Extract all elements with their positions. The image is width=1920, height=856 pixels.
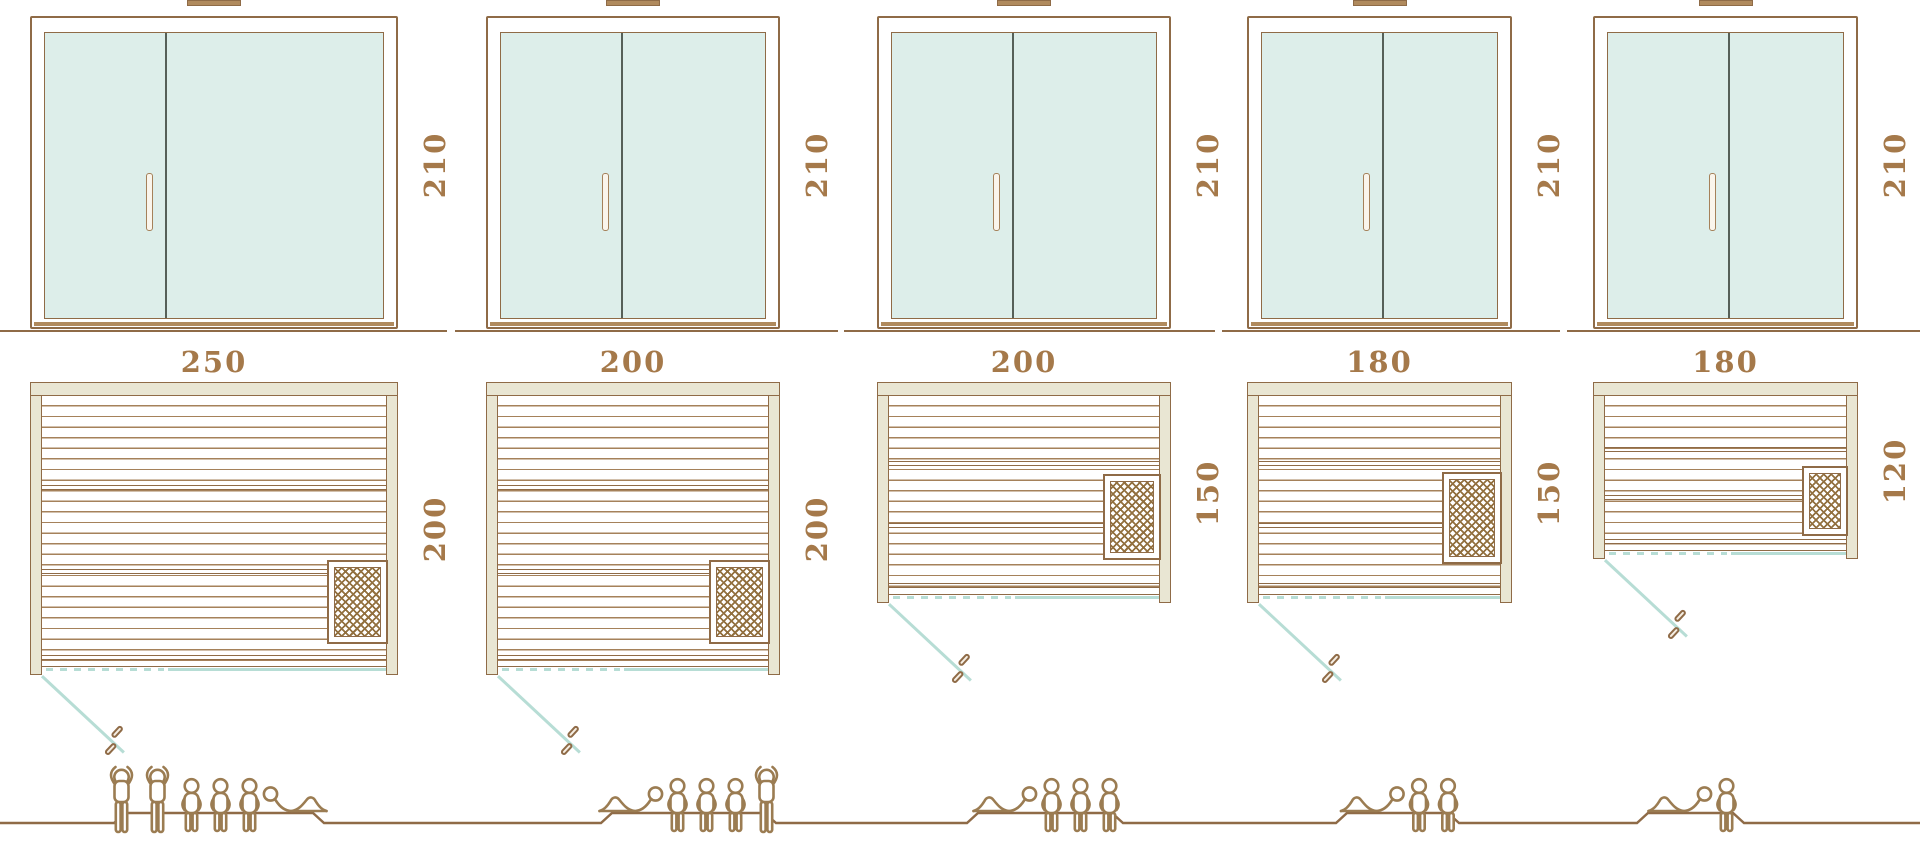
roof-vent-cap (997, 0, 1051, 6)
plan-wall-top (1593, 382, 1858, 396)
person-seated-icon (211, 779, 229, 831)
plan-wall-top (30, 382, 398, 396)
glass-front-fixed-pane (168, 668, 386, 671)
floor-plan (486, 382, 780, 675)
person-seated-icon (1071, 779, 1089, 831)
door-height-dimension: 210 (800, 132, 834, 199)
door-swing-line (41, 675, 125, 753)
door-frame (1247, 16, 1512, 329)
heater (1802, 466, 1848, 536)
door-height-dimension: 210 (1191, 132, 1225, 199)
door-handle-plan-icon (1657, 606, 1698, 647)
sauna-column: 210 180 120 (1593, 0, 1858, 856)
glass-front-fixed-pane (1015, 596, 1159, 599)
bench-planks (41, 395, 387, 667)
plan-depth-dimension: 120 (1878, 437, 1912, 504)
glass-front-door-opening (1263, 596, 1381, 599)
floor-plan (1247, 382, 1512, 603)
bench-edge (1259, 583, 1500, 588)
heater-element-grid (1809, 473, 1841, 529)
bench-edge (889, 583, 1159, 588)
heater-element-grid (334, 567, 381, 637)
door-handle-plan-icon (550, 722, 591, 763)
bench-planks (497, 395, 769, 667)
bench-edge (889, 461, 1159, 466)
bench-edge (498, 485, 768, 490)
ground-line (0, 330, 447, 332)
plan-depth-dimension: 150 (1532, 459, 1566, 526)
door-frame (877, 16, 1171, 329)
bench-edge (1605, 447, 1846, 452)
person-standing-icon (111, 767, 132, 832)
glass-front-door-opening (1609, 552, 1727, 555)
person-seated-icon (668, 779, 686, 831)
heater-element-grid (1449, 479, 1495, 557)
ground-line (1222, 330, 1560, 332)
floor-plan (877, 382, 1171, 603)
door-handle-plan-icon (1311, 650, 1352, 691)
plan-wall-right (1159, 382, 1171, 603)
bench-edge (42, 655, 386, 660)
sauna-column: 210 200 200 (486, 0, 780, 856)
door-height-dimension: 210 (418, 132, 452, 199)
floor-plan (1593, 382, 1858, 559)
door-handle-plan-icon (941, 650, 982, 691)
sauna-column: 210 200 150 (877, 0, 1171, 856)
sauna-column: 210 180 150 (1247, 0, 1512, 856)
door-swing-line (888, 603, 972, 681)
glass-front-fixed-pane (1385, 596, 1500, 599)
person-seated-icon (1438, 779, 1456, 831)
door-sill (490, 322, 776, 326)
door-frame (1593, 16, 1858, 329)
person-standing-icon (756, 767, 777, 832)
glass-front-fixed-pane (1731, 552, 1846, 555)
glass-panels (500, 32, 766, 319)
bench-edge (498, 655, 768, 660)
person-seated-icon (697, 779, 715, 831)
door-leaf-divider (621, 33, 623, 318)
door-handle-icon (993, 173, 1000, 231)
heater (1442, 472, 1502, 564)
plan-wall-right (1500, 382, 1512, 603)
door-leaf-divider (1728, 33, 1730, 318)
bench-planks (1258, 395, 1501, 595)
heater-element-grid (1110, 481, 1154, 553)
door-handle-icon (1363, 173, 1370, 231)
door-handle-icon (602, 173, 609, 231)
person-seated-icon (240, 779, 258, 831)
ground-line (844, 330, 1215, 332)
door-swing-line (497, 675, 581, 753)
glass-panels (44, 32, 384, 319)
bench-edge (1605, 539, 1846, 544)
plan-wall-top (1247, 382, 1512, 396)
bench-planks (888, 395, 1160, 595)
capacity-people-icons (1268, 760, 1528, 856)
heater (709, 560, 770, 644)
capacity-people-icons (1561, 760, 1821, 856)
glass-panels (1261, 32, 1498, 319)
ground-line (455, 330, 838, 332)
capacity-people-icons (915, 760, 1175, 856)
plan-width-dimension: 200 (600, 345, 667, 379)
person-lying-icon (1341, 787, 1404, 811)
plan-wall-right (386, 382, 398, 675)
plan-width-dimension: 250 (181, 345, 248, 379)
person-lying-icon (264, 787, 327, 811)
person-seated-icon (1100, 779, 1118, 831)
plan-width-dimension: 180 (1692, 345, 1759, 379)
door-swing-line (1258, 603, 1342, 681)
door-frame (486, 16, 780, 329)
glass-front-fixed-pane (624, 668, 768, 671)
capacity-people-icons (559, 760, 819, 856)
sauna-size-comparison-diagram: 210 250 200 (0, 0, 1920, 856)
capacity-people-icons (89, 760, 349, 856)
person-standing-icon (147, 767, 168, 832)
person-lying-icon (974, 787, 1037, 811)
plan-depth-dimension: 150 (1191, 459, 1225, 526)
glass-panels (891, 32, 1157, 319)
heater (1103, 474, 1161, 560)
door-sill (881, 322, 1167, 326)
door-sill (1251, 322, 1508, 326)
person-lying-icon (1648, 787, 1711, 811)
heater-element-grid (716, 567, 763, 637)
door-swing-line (1604, 559, 1688, 637)
door-sill (1597, 322, 1854, 326)
roof-vent-cap (187, 0, 241, 6)
bench-edge (1259, 461, 1500, 466)
person-seated-icon (1717, 779, 1735, 831)
door-frame (30, 16, 398, 329)
door-leaf-divider (165, 33, 167, 318)
door-handle-icon (1709, 173, 1716, 231)
door-handle-plan-icon (94, 722, 135, 763)
ground-line (1567, 330, 1920, 332)
roof-vent-cap (1699, 0, 1753, 6)
glass-front-door-opening (502, 668, 620, 671)
person-seated-icon (182, 779, 200, 831)
heater (327, 560, 388, 644)
glass-front-door-opening (46, 668, 164, 671)
door-sill (34, 322, 394, 326)
sauna-column: 210 250 200 (30, 0, 398, 856)
floor-plan (30, 382, 398, 675)
plan-wall-right (1846, 382, 1858, 559)
person-seated-icon (1042, 779, 1060, 831)
glass-front-door-opening (893, 596, 1011, 599)
person-lying-icon (599, 787, 662, 811)
door-leaf-divider (1382, 33, 1384, 318)
door-leaf-divider (1012, 33, 1014, 318)
plan-depth-dimension: 200 (418, 495, 452, 562)
roof-vent-cap (606, 0, 660, 6)
door-handle-icon (146, 173, 153, 231)
person-seated-icon (726, 779, 744, 831)
plan-wall-top (877, 382, 1171, 396)
bench-planks (1604, 395, 1847, 551)
door-height-dimension: 210 (1878, 132, 1912, 199)
roof-vent-cap (1353, 0, 1407, 6)
plan-depth-dimension: 200 (800, 495, 834, 562)
glass-panels (1607, 32, 1844, 319)
plan-width-dimension: 180 (1346, 345, 1413, 379)
door-height-dimension: 210 (1532, 132, 1566, 199)
plan-width-dimension: 200 (991, 345, 1058, 379)
bench-edge (42, 485, 386, 490)
plan-wall-top (486, 382, 780, 396)
person-seated-icon (1409, 779, 1427, 831)
plan-wall-right (768, 382, 780, 675)
